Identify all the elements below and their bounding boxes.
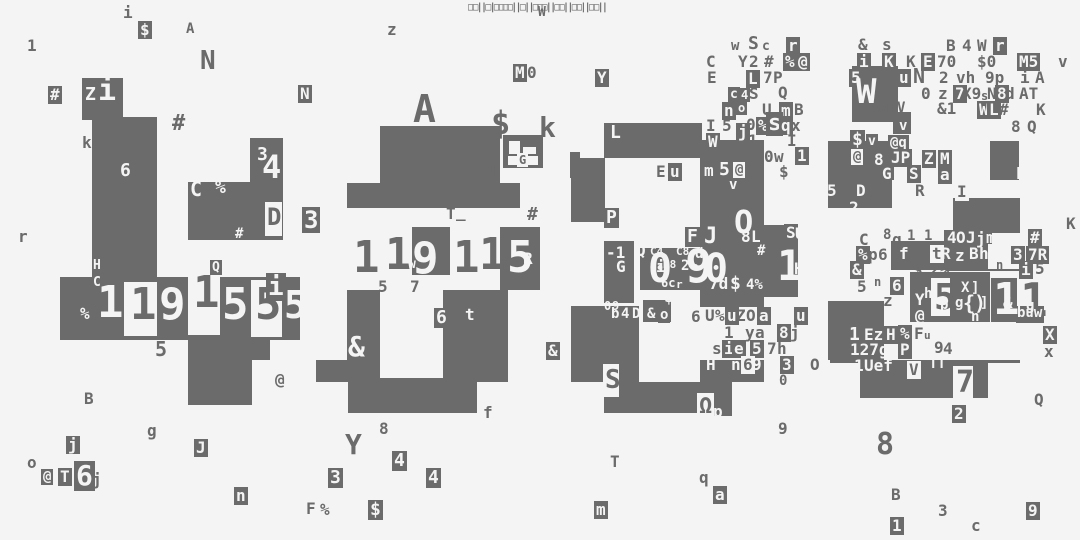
noise-glyph: $ (913, 262, 923, 278)
noise-glyph: O (810, 357, 820, 373)
noise-glyph: & (647, 307, 655, 321)
noise-glyph: 5 (722, 118, 732, 134)
ink-block (188, 360, 252, 405)
noise-glyph: H (794, 261, 804, 277)
noise-glyph: % (320, 502, 330, 518)
ink-block (188, 340, 270, 360)
noise-glyph: z (883, 293, 893, 309)
noise-glyph: % (783, 53, 797, 71)
noise-glyph: Y (738, 54, 748, 70)
noise-glyph: P (898, 341, 912, 359)
noise-glyph: # (48, 86, 62, 104)
noise-glyph: A (413, 90, 436, 128)
noise-glyph: f (899, 246, 909, 262)
noise-glyph: T (58, 468, 72, 486)
noise-glyph: u (794, 307, 808, 325)
noise-glyph: V (897, 101, 905, 115)
noise-glyph: n (234, 487, 248, 505)
noise-glyph: p (868, 247, 878, 263)
noise-glyph: # (527, 206, 538, 224)
noise-glyph: buw (1017, 306, 1042, 320)
noise-glyph: % (715, 308, 725, 324)
noise-glyph: M (513, 64, 527, 82)
noise-glyph: 9 (752, 357, 762, 373)
noise-glyph: K (1036, 102, 1046, 118)
noise-glyph: $ (138, 21, 152, 39)
noise-glyph: b (611, 307, 619, 321)
noise-glyph: u (668, 163, 682, 181)
noise-glyph: s (882, 37, 892, 53)
noise-glyph: @ (915, 308, 925, 324)
noise-glyph: T (610, 454, 620, 470)
noise-glyph: 5 (284, 286, 307, 324)
noise-glyph: c (971, 518, 981, 534)
noise-glyph: @ (851, 149, 863, 165)
noise-glyph: t (465, 307, 475, 323)
noise-glyph: U (705, 308, 715, 324)
noise-glyph: D (267, 205, 281, 229)
noise-glyph: g (147, 423, 157, 439)
noise-glyph: o (736, 101, 747, 115)
noise-glyph: e (609, 227, 619, 243)
noise-glyph: 5 (857, 279, 867, 295)
noise-glyph: _ (456, 204, 466, 220)
ink-block (443, 290, 508, 382)
noise-glyph: j (66, 436, 80, 454)
noise-glyph: & (348, 333, 365, 361)
ink-block (947, 269, 1020, 271)
noise-glyph: & (858, 37, 868, 53)
noise-glyph: Q (636, 243, 646, 259)
noise-glyph: k (539, 114, 556, 142)
noise-glyph: 3 (780, 356, 794, 374)
noise-glyph: w (408, 258, 416, 271)
noise-glyph: C (190, 179, 202, 199)
noise-glyph: D (856, 183, 866, 199)
noise-glyph: F (306, 501, 316, 517)
noise-glyph: u (897, 69, 911, 87)
noise-glyph: $ (728, 274, 743, 294)
noise-glyph: h (924, 287, 932, 301)
noise-glyph: i (123, 5, 133, 21)
noise-glyph: 6 (878, 247, 888, 263)
noise-glyph: r (18, 229, 28, 245)
noise-glyph: x (1044, 344, 1054, 360)
noise-glyph: 6 (434, 308, 449, 328)
noise-glyph: K (882, 53, 896, 71)
noise-glyph: 1 (353, 236, 380, 280)
noise-glyph: K (1066, 216, 1076, 232)
noise-glyph: B (891, 487, 901, 503)
noise-glyph: v (729, 178, 737, 192)
noise-glyph: $ (850, 130, 865, 150)
noise-glyph: Z (85, 86, 96, 104)
noise-glyph: $ (368, 500, 383, 520)
noise-glyph: R (523, 251, 533, 267)
noise-glyph: 5 (378, 279, 388, 295)
noise-glyph: p (713, 404, 723, 420)
noise-glyph: z (387, 22, 397, 38)
noise-glyph: 1 (97, 281, 124, 325)
noise-glyph: h (1016, 166, 1026, 182)
noise-glyph: 4 (621, 307, 629, 321)
noise-glyph: 4 (392, 451, 407, 471)
noise-glyph: # (235, 227, 243, 241)
noise-glyph: n (874, 276, 881, 288)
noise-glyph: # (757, 244, 765, 258)
noise-glyph: v (1058, 54, 1068, 70)
noise-glyph: W (538, 6, 546, 19)
noise-glyph: TT (929, 357, 946, 371)
noise-glyph: 7d (709, 276, 728, 292)
ink-block (348, 378, 477, 413)
noise-glyph: G (517, 153, 528, 167)
noise-glyph: % (80, 306, 90, 322)
noise-glyph: 5 (222, 283, 249, 327)
noise-glyph: H (706, 357, 716, 373)
noise-glyph: k (82, 135, 92, 151)
noise-glyph: R (915, 183, 925, 199)
noise-glyph: 3 (938, 503, 948, 519)
noise-glyph: a (713, 486, 727, 504)
noise-glyph: &1 (937, 101, 956, 117)
noise-glyph: r (676, 279, 683, 290)
noise-glyph: 1 (890, 517, 904, 535)
noise-glyph: 1 (924, 229, 932, 243)
noise-glyph: Q (1034, 392, 1044, 408)
noise-glyph: a (938, 166, 952, 184)
noise-glyph: 1 (479, 233, 506, 277)
noise-glyph: G (616, 259, 626, 275)
noise-glyph: 1 (130, 283, 157, 327)
noise-glyph: % (215, 179, 226, 197)
noise-glyph: 7 (410, 279, 420, 295)
noise-glyph: w (731, 39, 739, 53)
noise-glyph: 2 (952, 405, 966, 423)
noise-glyph: E (707, 70, 717, 86)
noise-glyph: i (98, 76, 116, 106)
noise-glyph: i (266, 273, 286, 301)
noise-glyph: S (605, 367, 621, 393)
noise-glyph: 0 (764, 149, 774, 165)
noise-glyph: Uef (864, 358, 893, 374)
noise-glyph: D (887, 102, 895, 116)
noise-glyph: $ (779, 164, 789, 180)
noise-glyph: $ (491, 107, 510, 139)
noise-glyph: 8 (379, 421, 389, 437)
noise-glyph: H (93, 259, 101, 272)
noise-glyph: 0 (779, 374, 787, 388)
noise-glyph: N (298, 85, 312, 103)
noise-glyph: Q (1027, 119, 1037, 135)
noise-glyph: ] (980, 296, 988, 310)
ink-block (347, 183, 520, 208)
noise-glyph: J (194, 439, 208, 457)
noise-glyph: T (446, 206, 456, 222)
noise-glyph: m (704, 163, 714, 179)
noise-glyph: Y (345, 431, 362, 459)
noise-glyph: Z (736, 308, 746, 324)
noise-glyph: Q (778, 85, 788, 101)
noise-glyph: 8 (1011, 119, 1021, 135)
noise-glyph: n (731, 357, 741, 373)
noise-glyph: 9 (778, 421, 788, 437)
noise-glyph: o (27, 455, 37, 471)
noise-glyph: 1 (193, 271, 220, 315)
noise-glyph: w (877, 102, 885, 116)
noise-glyph: V (907, 361, 921, 379)
noise-glyph: 9 (159, 283, 186, 327)
noise-glyph: Z (922, 150, 936, 168)
noise-glyph: 3 (302, 207, 320, 233)
noise-glyph: W (706, 133, 720, 151)
noise-glyph: m (594, 501, 608, 519)
noise-glyph: 7 (763, 70, 773, 86)
noise-glyph: 4 (962, 38, 972, 54)
noise-glyph: q (699, 470, 709, 486)
noise-glyph: B (969, 246, 979, 262)
noise-glyph: @ (275, 372, 285, 388)
noise-glyph: 4 (943, 341, 953, 357)
noise-glyph: 1 (748, 133, 758, 149)
noise-glyph: n (971, 310, 979, 324)
noise-glyph: v (899, 119, 907, 133)
noise-glyph: U (491, 164, 501, 180)
noise-glyph: f (483, 405, 493, 421)
noise-glyph: @ (41, 469, 53, 485)
noise-glyph: j (790, 325, 800, 341)
ink-block (571, 158, 605, 222)
noise-glyph: h (979, 246, 989, 262)
noise-glyph: C (897, 166, 907, 182)
glyph-art-canvas: □□||□|□□□□||□||□□□||□□||□□||□□|| i$A1N#Z… (0, 0, 1080, 540)
noise-glyph: X (765, 357, 775, 373)
noise-glyph: O (956, 230, 966, 246)
noise-glyph: E (656, 164, 666, 180)
noise-glyph: 5 (827, 183, 837, 199)
noise-glyph: O (746, 308, 756, 324)
noise-glyph: u (924, 330, 931, 341)
ink-block (990, 141, 1019, 180)
noise-glyph: U (795, 226, 805, 242)
noise-glyph: N (913, 66, 925, 86)
noise-glyph: j (92, 472, 102, 488)
noise-glyph: & (1003, 295, 1013, 311)
noise-glyph: 8 (741, 229, 751, 245)
ink-block (380, 126, 500, 183)
noise-glyph: L (610, 124, 621, 142)
noise-glyph: z (955, 248, 965, 264)
noise-glyph: 1 (795, 147, 809, 165)
noise-glyph: Ω (699, 396, 712, 418)
noise-glyph: 6 (691, 309, 701, 325)
noise-glyph: F (914, 326, 924, 342)
noise-glyph: S (748, 35, 759, 53)
noise-glyph: 4% (746, 278, 763, 292)
noise-glyph: 6 (120, 162, 131, 180)
noise-glyph: D (632, 307, 640, 321)
noise-glyph: Y (595, 69, 609, 87)
noise-glyph: 8 (876, 430, 894, 460)
noise-glyph: 1 (907, 229, 915, 243)
noise-glyph: 4 (426, 468, 441, 488)
noise-glyph: & (546, 342, 560, 360)
noise-glyph: 5 (155, 339, 167, 359)
noise-glyph: 2% (930, 262, 949, 278)
noise-glyph: S (749, 86, 759, 102)
noise-glyph: B (84, 391, 94, 407)
noise-glyph: 9 (1026, 502, 1040, 520)
noise-glyph: 2 (749, 54, 759, 70)
noise-glyph: 4 (262, 151, 281, 183)
ink-block (92, 117, 157, 278)
noise-glyph: 2 (849, 200, 859, 216)
noise-glyph: G (882, 166, 892, 182)
noise-glyph: 1 (27, 38, 37, 54)
noise-glyph: c (868, 103, 875, 115)
noise-glyph: 0 (921, 86, 931, 102)
noise-glyph: 3 (328, 468, 343, 488)
noise-glyph: 7 (956, 368, 974, 398)
noise-glyph: A (186, 22, 194, 36)
noise-glyph: @ (796, 53, 810, 71)
noise-glyph: o (658, 307, 670, 323)
noise-glyph: 1 (453, 236, 480, 280)
noise-glyph: # (999, 102, 1009, 118)
noise-glyph: 0 (527, 65, 537, 81)
noise-glyph: 1 (854, 358, 864, 374)
noise-glyph: @ (733, 162, 745, 178)
noise-glyph: $ (664, 289, 674, 305)
noise-glyph: p (940, 298, 948, 312)
noise-glyph: 8 (883, 228, 891, 242)
noise-glyph: I (955, 183, 969, 201)
noise-glyph: v (866, 134, 878, 149)
noise-glyph: n (996, 259, 1003, 271)
noise-glyph: N (200, 48, 216, 74)
noise-glyph: # (172, 113, 185, 135)
